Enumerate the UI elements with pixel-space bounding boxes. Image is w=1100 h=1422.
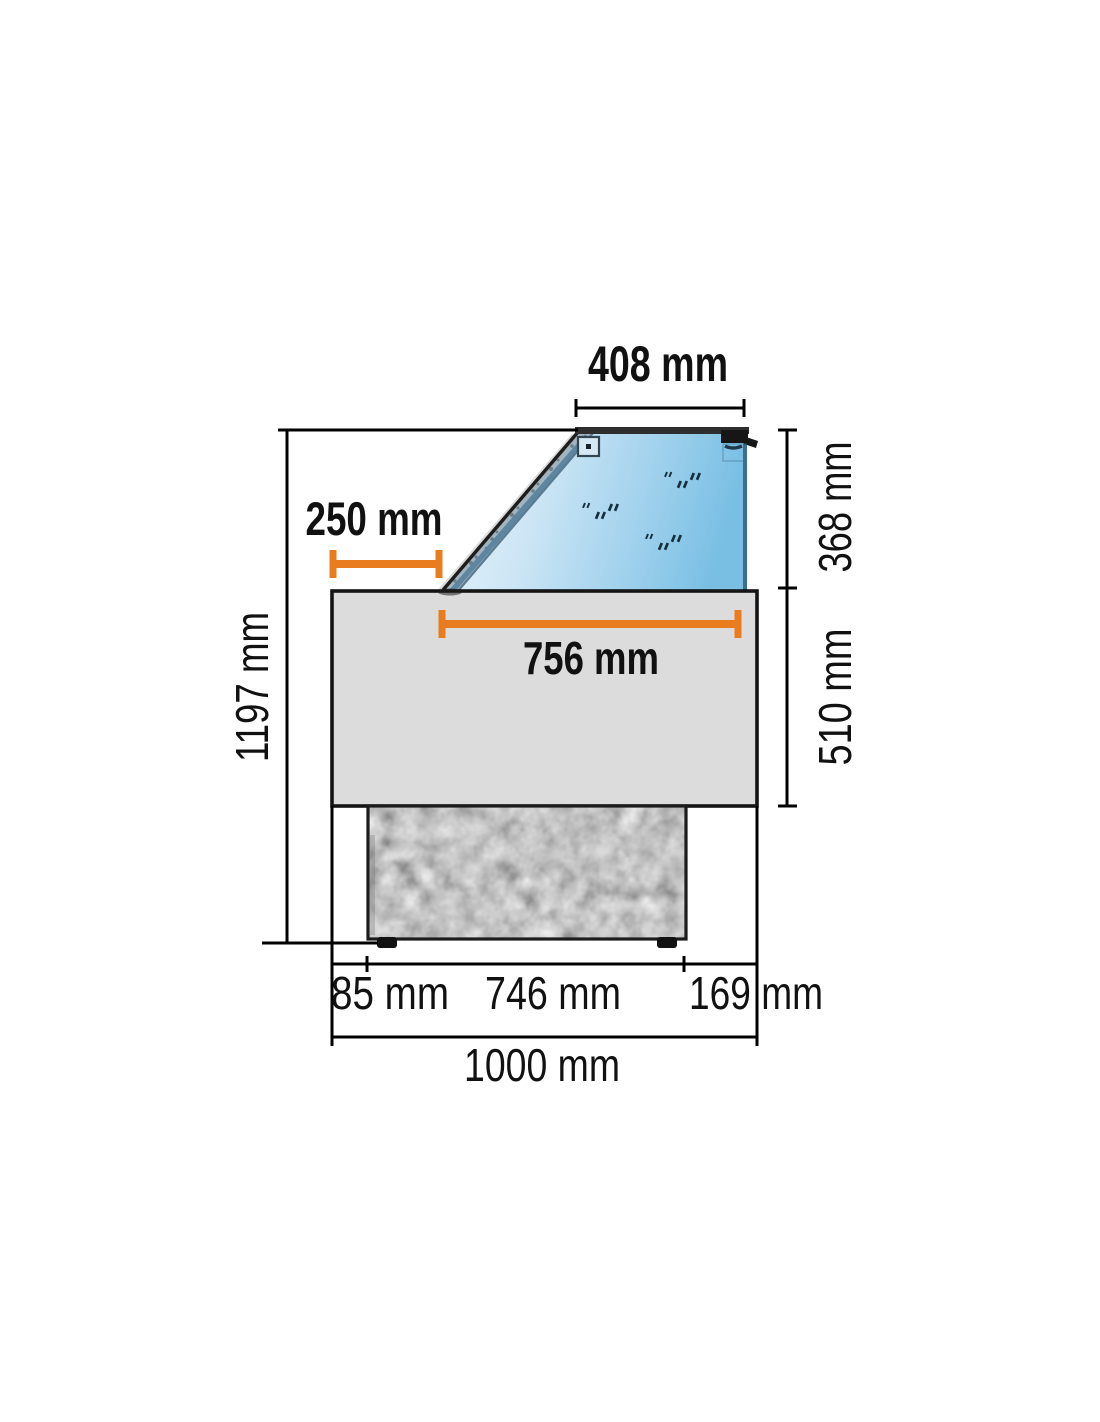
svg-text:1000 mm: 1000 mm bbox=[464, 1039, 620, 1091]
svg-text:408 mm: 408 mm bbox=[588, 336, 728, 392]
svg-text:756 mm: 756 mm bbox=[523, 632, 659, 684]
svg-text:510 mm: 510 mm bbox=[809, 629, 861, 766]
svg-text:85 mm: 85 mm bbox=[331, 967, 449, 1019]
svg-text:746 mm: 746 mm bbox=[485, 967, 621, 1019]
svg-text:250 mm: 250 mm bbox=[306, 492, 443, 545]
svg-text:368 mm: 368 mm bbox=[809, 442, 861, 573]
svg-text:169 mm: 169 mm bbox=[689, 967, 823, 1019]
svg-text:1197 mm: 1197 mm bbox=[226, 612, 278, 762]
